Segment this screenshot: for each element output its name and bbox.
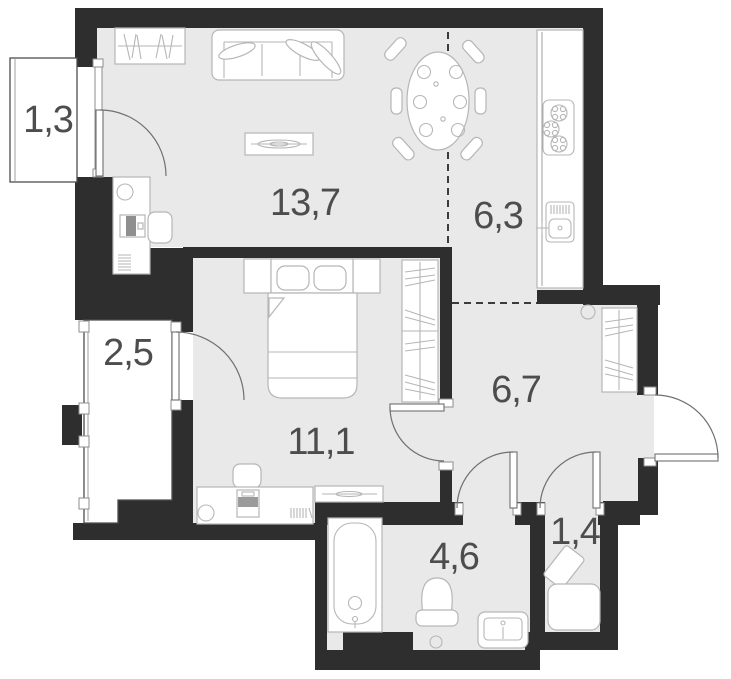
kitchen-counter-icon — [537, 30, 583, 288]
room-label-bathroom: 4,6 — [429, 536, 479, 578]
room-label-hallway: 6,7 — [491, 369, 541, 411]
room-label-living-room: 13,7 — [270, 182, 340, 224]
floor-plan-svg: 1,3 13,7 6,3 2,5 11,1 6,7 4,6 1,4 — [0, 0, 731, 679]
bathtub-duct-wall — [343, 632, 413, 650]
room-label-kitchen: 6,3 — [473, 195, 523, 237]
room-label-balcony-top: 1,3 — [23, 99, 73, 141]
entrance-threshold — [640, 395, 654, 458]
sofa-icon — [212, 30, 345, 80]
washbasin-icon — [478, 612, 528, 648]
coffee-table-icon — [245, 133, 313, 155]
dresser-icon — [315, 486, 383, 502]
hall-wardrobe-icon — [602, 308, 637, 392]
desk-chair-icon — [148, 212, 172, 243]
bed-body — [268, 293, 357, 398]
floor-plan-canvas: 1,3 13,7 6,3 2,5 11,1 6,7 4,6 1,4 — [0, 0, 731, 679]
bedroom-wardrobe-icon — [402, 260, 438, 402]
living-wardrobe-icon — [115, 28, 185, 64]
bedroom-door-threshold — [440, 407, 452, 462]
nightstand-icon — [244, 259, 271, 293]
computer-icon — [237, 490, 259, 517]
pillow-icon — [277, 266, 309, 290]
room-label-bedroom: 11,1 — [287, 421, 354, 463]
room-label-balcony-left: 2,5 — [103, 332, 153, 374]
entrance-door — [644, 387, 718, 466]
bathroom-door-threshold — [463, 502, 515, 526]
bathtub-icon — [328, 518, 382, 632]
pillow-icon — [314, 266, 346, 290]
nightstand-icon — [353, 259, 380, 293]
desk-chair-icon — [233, 464, 261, 488]
room-label-storage: 1,4 — [550, 511, 601, 553]
